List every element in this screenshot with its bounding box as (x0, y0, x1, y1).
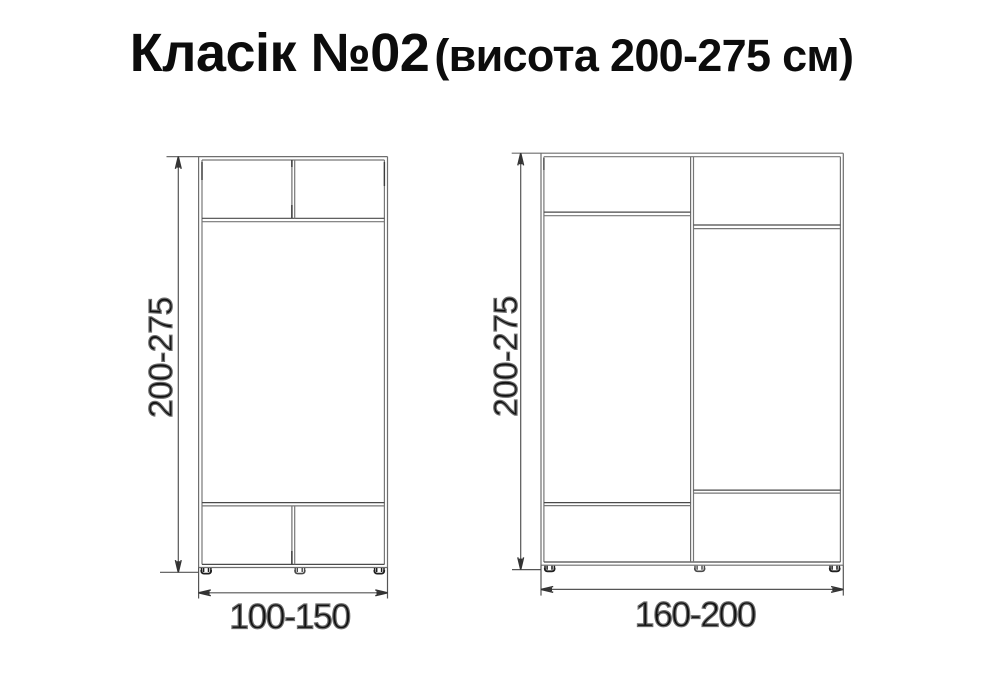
svg-text:100-150: 100-150 (229, 597, 350, 637)
svg-text:160-200: 160-200 (635, 595, 756, 635)
svg-text:200-275: 200-275 (143, 297, 180, 418)
svg-text:200-275: 200-275 (488, 296, 525, 417)
